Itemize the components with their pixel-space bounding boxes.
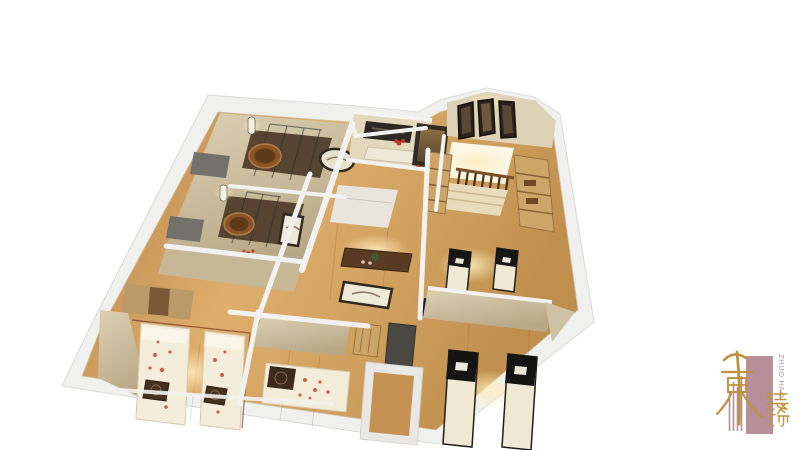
render-canvas: ZHUO HAO 装饰 卓昊 — [0, 0, 800, 450]
brand-logo: ZHUO HAO — [0, 0, 800, 450]
logo-vertical-name: ZHUO HAO — [777, 354, 786, 398]
